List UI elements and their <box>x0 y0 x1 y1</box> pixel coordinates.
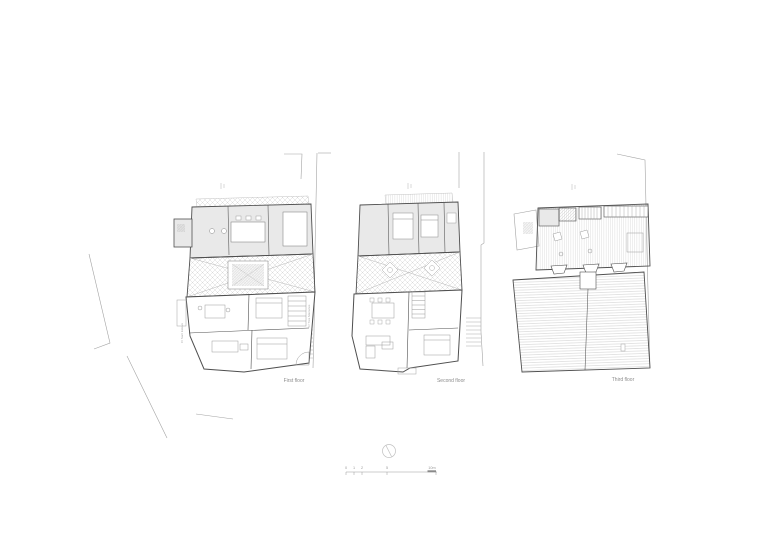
third-floor-label: Third floor <box>612 377 635 383</box>
first-floor-house-outline <box>186 292 315 372</box>
street-label-left: C/ Sant Esteve <box>180 323 184 343</box>
second-floor-label: Second floor <box>437 378 465 384</box>
scale-tick-5: 5 <box>386 466 388 470</box>
roof-vent <box>621 344 625 351</box>
first-floor-annex <box>174 219 192 247</box>
floor-plans-sheet: C/ Sant Esteve C/ Tres Marianes First fl… <box>0 0 780 551</box>
first-floor-plan: C/ Sant Esteve C/ Tres Marianes First fl… <box>89 153 331 438</box>
scale-bar: 0 1 2 5 10m <box>345 466 437 475</box>
street-label-right: C/ Tres Marianes <box>307 304 311 327</box>
scale-bar-filled-segment <box>428 470 437 472</box>
third-floor-plan: Third floor <box>513 154 650 383</box>
first-floor-label: First floor <box>284 378 305 384</box>
floor-plans-drawing: C/ Sant Esteve C/ Tres Marianes First fl… <box>0 0 780 551</box>
section-marker-icon <box>572 184 575 190</box>
roof-hatch-opening <box>580 272 596 289</box>
annex-hatch <box>177 224 185 232</box>
chimney-hatch <box>523 222 533 234</box>
scale-tick-10m: 10m <box>428 466 435 470</box>
north-arrow-icon <box>383 445 396 458</box>
section-marker-icon <box>221 183 224 189</box>
section-marker-icon <box>408 183 411 189</box>
scale-tick-1: 1 <box>353 466 355 470</box>
second-floor-plan: Second floor <box>352 152 484 384</box>
scale-tick-2: 2 <box>361 466 363 470</box>
scale-tick-0: 0 <box>345 466 347 470</box>
